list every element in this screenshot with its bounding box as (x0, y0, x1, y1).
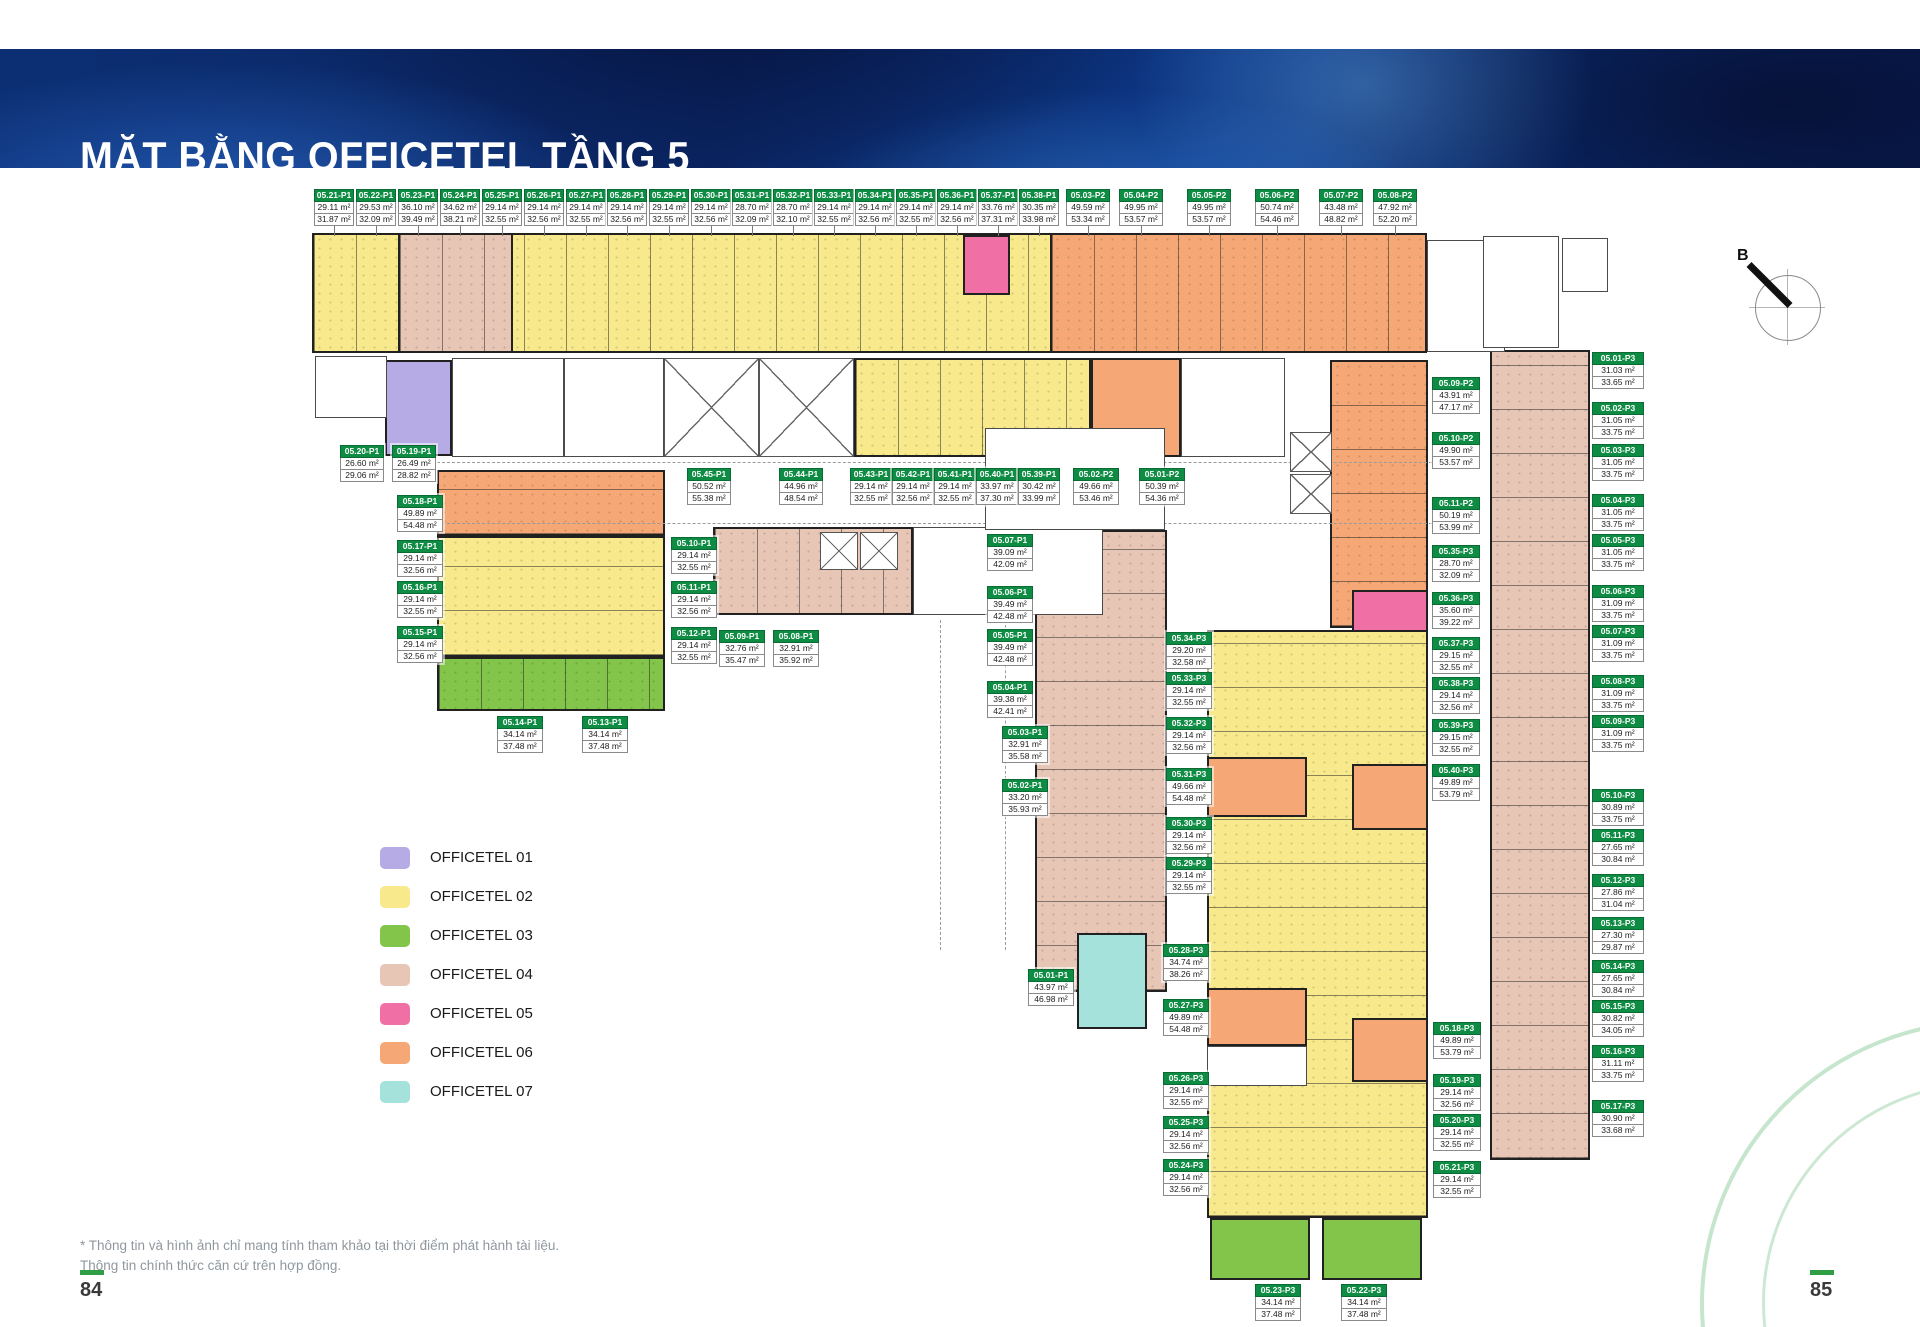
unit-code: 05.29-P3 (1166, 857, 1212, 870)
plan-core (1181, 358, 1285, 457)
unit-area-1: 49.66 m² (1166, 781, 1212, 793)
legend-swatch-icon (380, 847, 410, 869)
unit-area-2: 53.57 m² (1432, 457, 1480, 469)
unit-code: 05.11-P2 (1432, 497, 1480, 510)
legend-item: OFFICETEL 01 (380, 838, 533, 877)
unit-label: 05.08-P247.92 m²52.20 m² (1373, 189, 1417, 226)
unit-area-1: 29.14 m² (671, 550, 717, 562)
unit-area-2: 32.55 m² (566, 214, 606, 226)
unit-area-1: 33.97 m² (976, 481, 1018, 493)
unit-area-2: 31.87 m² (314, 214, 354, 226)
unit-area-1: 49.89 m² (397, 508, 443, 520)
unit-label: 05.20-P126.60 m²29.06 m² (340, 445, 384, 482)
unit-area-1: 27.30 m² (1592, 930, 1644, 942)
plan-elevator (820, 532, 858, 570)
unit-code: 05.34-P3 (1166, 632, 1212, 645)
legend-item: OFFICETEL 07 (380, 1072, 533, 1111)
unit-code: 05.29-P1 (649, 189, 689, 202)
unit-code: 05.05-P3 (1592, 534, 1644, 547)
unit-label: 05.40-P349.89 m²53.79 m² (1432, 764, 1480, 801)
unit-label: 05.17-P330.90 m²33.68 m² (1592, 1100, 1644, 1137)
unit-label: 05.04-P139.38 m²42.41 m² (987, 681, 1033, 718)
unit-code: 05.23-P1 (398, 189, 438, 202)
legend-label: OFFICETEL 04 (430, 966, 533, 983)
unit-label: 05.18-P349.89 m²53.79 m² (1433, 1022, 1481, 1059)
legend-item: OFFICETEL 04 (380, 955, 533, 994)
unit-area-2: 42.48 m² (987, 654, 1033, 666)
plan-elevator (860, 532, 898, 570)
unit-code: 05.34-P1 (855, 189, 895, 202)
unit-area-2: 32.56 m² (855, 214, 895, 226)
legend-item: OFFICETEL 06 (380, 1033, 533, 1072)
plan-wing (1210, 1218, 1310, 1280)
unit-area-1: 29.14 m² (397, 639, 443, 651)
unit-area-2: 32.55 m² (934, 493, 976, 505)
unit-area-2: 32.55 m² (397, 606, 443, 618)
plan-wing (1207, 630, 1428, 1218)
legend-label: OFFICETEL 02 (430, 888, 533, 905)
unit-label: 05.05-P249.95 m²53.57 m² (1187, 189, 1231, 226)
unit-area-1: 29.14 m² (1166, 685, 1212, 697)
unit-area-2: 32.55 m² (1432, 662, 1480, 674)
unit-area-1: 29.11 m² (314, 202, 354, 214)
unit-code: 05.03-P3 (1592, 444, 1644, 457)
plan-core (1483, 236, 1559, 348)
unit-code: 05.42-P1 (892, 468, 934, 481)
unit-area-1: 30.42 m² (1018, 481, 1060, 493)
unit-label: 05.45-P150.52 m²55.38 m² (687, 468, 731, 505)
unit-code: 05.04-P2 (1119, 189, 1163, 202)
plan-wing (1207, 757, 1307, 817)
unit-label: 05.14-P134.14 m²37.48 m² (497, 716, 543, 753)
unit-area-1: 31.05 m² (1592, 547, 1644, 559)
unit-label: 05.24-P329.14 m²32.56 m² (1163, 1159, 1209, 1196)
unit-code: 05.08-P1 (773, 630, 819, 643)
unit-area-2: 33.75 m² (1592, 740, 1644, 752)
unit-label: 05.44-P144.96 m²48.54 m² (779, 468, 823, 505)
unit-area-2: 32.55 m² (850, 493, 892, 505)
plan-core (564, 358, 664, 457)
unit-area-1: 28.70 m² (1432, 558, 1480, 570)
unit-area-1: 31.09 m² (1592, 728, 1644, 740)
unit-area-2: 37.31 m² (978, 214, 1018, 226)
unit-area-1: 29.14 m² (1433, 1087, 1481, 1099)
plan-wing (1077, 933, 1147, 1029)
unit-code: 05.27-P3 (1163, 999, 1209, 1012)
unit-label: 05.07-P243.48 m²48.82 m² (1319, 189, 1363, 226)
unit-label: 05.11-P250.19 m²53.99 m² (1432, 497, 1480, 534)
plan-wing (437, 657, 665, 711)
unit-area-1: 34.14 m² (497, 729, 543, 741)
unit-code: 05.12-P1 (671, 627, 717, 640)
unit-area-2: 33.65 m² (1592, 377, 1644, 389)
plan-elevator (1290, 474, 1332, 514)
unit-area-1: 31.05 m² (1592, 457, 1644, 469)
unit-code: 05.27-P1 (566, 189, 606, 202)
unit-code: 05.24-P1 (440, 189, 480, 202)
unit-code: 05.16-P3 (1592, 1045, 1644, 1058)
unit-area-1: 31.09 m² (1592, 638, 1644, 650)
page-number-dash (80, 1270, 104, 1275)
unit-code: 05.36-P3 (1432, 592, 1480, 605)
unit-area-2: 32.55 m² (671, 652, 717, 664)
unit-label: 05.13-P134.14 m²37.48 m² (582, 716, 628, 753)
unit-code: 05.07-P2 (1319, 189, 1363, 202)
unit-label: 05.38-P130.35 m²33.98 m² (1019, 189, 1059, 226)
unit-area-2: 32.56 m² (937, 214, 977, 226)
unit-area-1: 39.49 m² (987, 599, 1033, 611)
unit-label: 05.39-P329.15 m²32.55 m² (1432, 719, 1480, 756)
unit-code: 05.21-P3 (1433, 1161, 1481, 1174)
unit-area-1: 49.95 m² (1187, 202, 1231, 214)
unit-label: 05.16-P129.14 m²32.55 m² (397, 581, 443, 618)
unit-code: 05.10-P2 (1432, 432, 1480, 445)
unit-area-2: 54.48 m² (1166, 793, 1212, 805)
unit-area-1: 31.05 m² (1592, 507, 1644, 519)
unit-code: 05.04-P1 (987, 681, 1033, 694)
plan-wing (385, 360, 452, 456)
unit-code: 05.13-P1 (582, 716, 628, 729)
unit-code: 05.08-P3 (1592, 675, 1644, 688)
unit-area-2: 46.98 m² (1028, 994, 1074, 1006)
unit-code: 05.31-P3 (1166, 768, 1212, 781)
unit-label: 05.25-P329.14 m²32.56 m² (1163, 1116, 1209, 1153)
unit-code: 05.38-P1 (1019, 189, 1059, 202)
plan-core (1562, 238, 1608, 292)
unit-area-1: 29.14 m² (892, 481, 934, 493)
unit-area-1: 28.70 m² (732, 202, 772, 214)
unit-code: 05.40-P3 (1432, 764, 1480, 777)
unit-area-1: 29.14 m² (1166, 730, 1212, 742)
unit-area-1: 30.35 m² (1019, 202, 1059, 214)
unit-area-2: 32.58 m² (1166, 657, 1212, 669)
unit-label: 05.34-P329.20 m²32.58 m² (1166, 632, 1212, 669)
unit-code: 05.28-P3 (1163, 944, 1209, 957)
unit-area-2: 48.82 m² (1319, 214, 1363, 226)
unit-area-1: 49.66 m² (1073, 481, 1119, 493)
unit-code: 05.18-P3 (1433, 1022, 1481, 1035)
unit-area-2: 31.04 m² (1592, 899, 1644, 911)
unit-label: 05.30-P129.14 m²32.56 m² (691, 189, 731, 226)
unit-area-1: 49.90 m² (1432, 445, 1480, 457)
unit-label: 05.01-P143.97 m²46.98 m² (1028, 969, 1074, 1006)
unit-label: 05.28-P334.74 m²38.26 m² (1163, 944, 1209, 981)
unit-area-2: 32.55 m² (1166, 697, 1212, 709)
unit-area-2: 34.05 m² (1592, 1025, 1644, 1037)
unit-label: 05.15-P330.82 m²34.05 m² (1592, 1000, 1644, 1037)
unit-area-1: 29.14 m² (649, 202, 689, 214)
unit-code: 05.26-P3 (1163, 1072, 1209, 1085)
unit-area-2: 33.75 m² (1592, 519, 1644, 531)
unit-label: 05.41-P129.14 m²32.55 m² (934, 468, 976, 505)
unit-code: 05.22-P3 (1341, 1284, 1387, 1297)
unit-area-2: 38.26 m² (1163, 969, 1209, 981)
unit-area-1: 36.10 m² (398, 202, 438, 214)
unit-label: 05.38-P329.14 m²32.56 m² (1432, 677, 1480, 714)
unit-area-2: 32.09 m² (732, 214, 772, 226)
unit-area-2: 42.48 m² (987, 611, 1033, 623)
unit-label: 05.22-P334.14 m²37.48 m² (1341, 1284, 1387, 1321)
unit-code: 05.32-P1 (773, 189, 813, 202)
unit-code: 05.17-P1 (397, 540, 443, 553)
unit-label: 05.06-P250.74 m²54.46 m² (1255, 189, 1299, 226)
legend-swatch-icon (380, 964, 410, 986)
unit-code: 05.39-P1 (1018, 468, 1060, 481)
unit-area-2: 32.56 m² (397, 565, 443, 577)
unit-code: 05.33-P3 (1166, 672, 1212, 685)
unit-code: 05.37-P3 (1432, 637, 1480, 650)
unit-area-1: 29.14 m² (814, 202, 854, 214)
unit-label: 05.08-P132.91 m²35.92 m² (773, 630, 819, 667)
unit-label: 05.37-P133.76 m²37.31 m² (978, 189, 1018, 226)
plan-wing (1352, 764, 1428, 830)
unit-code: 05.17-P3 (1592, 1100, 1644, 1113)
unit-label: 05.12-P327.86 m²31.04 m² (1592, 874, 1644, 911)
unit-label: 05.20-P329.14 m²32.55 m² (1433, 1114, 1481, 1151)
page-number-dash (1810, 1270, 1834, 1275)
unit-code: 05.03-P1 (1002, 726, 1048, 739)
unit-area-2: 53.34 m² (1066, 214, 1110, 226)
unit-area-2: 32.56 m² (892, 493, 934, 505)
unit-label: 05.35-P328.70 m²32.09 m² (1432, 545, 1480, 582)
unit-area-2: 30.84 m² (1592, 854, 1644, 866)
unit-area-1: 49.95 m² (1119, 202, 1163, 214)
unit-area-1: 29.53 m² (356, 202, 396, 214)
plan-elevator (1290, 432, 1332, 472)
unit-code: 05.21-P1 (314, 189, 354, 202)
plan-wing (1490, 350, 1590, 1160)
unit-area-1: 34.74 m² (1163, 957, 1209, 969)
unit-label: 05.36-P129.14 m²32.56 m² (937, 189, 977, 226)
unit-label: 05.15-P129.14 m²32.56 m² (397, 626, 443, 663)
unit-area-1: 29.15 m² (1432, 732, 1480, 744)
unit-area-1: 27.86 m² (1592, 887, 1644, 899)
legend-label: OFFICETEL 01 (430, 849, 533, 866)
legend-label: OFFICETEL 03 (430, 927, 533, 944)
unit-area-2: 32.56 m² (1163, 1184, 1209, 1196)
plan-wing (1352, 590, 1428, 632)
unit-area-1: 29.14 m² (1433, 1127, 1481, 1139)
unit-label: 05.01-P331.03 m²33.65 m² (1592, 352, 1644, 389)
unit-code: 05.44-P1 (779, 468, 823, 481)
unit-label: 05.28-P129.14 m²32.56 m² (607, 189, 647, 226)
unit-area-1: 50.52 m² (687, 481, 731, 493)
plan-corridor (940, 620, 1006, 950)
unit-code: 05.32-P3 (1166, 717, 1212, 730)
unit-area-1: 29.14 m² (1166, 830, 1212, 842)
legend-swatch-icon (380, 1081, 410, 1103)
unit-area-1: 29.14 m² (566, 202, 606, 214)
plan-elevator (759, 358, 854, 457)
unit-area-2: 42.41 m² (987, 706, 1033, 718)
unit-code: 05.05-P2 (1187, 189, 1231, 202)
unit-label: 05.02-P133.20 m²35.93 m² (1002, 779, 1048, 816)
unit-label: 05.11-P327.65 m²30.84 m² (1592, 829, 1644, 866)
unit-label: 05.33-P129.14 m²32.55 m² (814, 189, 854, 226)
unit-code: 05.39-P3 (1432, 719, 1480, 732)
unit-area-1: 31.11 m² (1592, 1058, 1644, 1070)
unit-label: 05.21-P129.11 m²31.87 m² (314, 189, 354, 226)
compass: B (1737, 247, 1837, 352)
unit-area-2: 48.54 m² (779, 493, 823, 505)
plan-wing (1352, 1018, 1428, 1082)
unit-label: 05.27-P349.89 m²54.48 m² (1163, 999, 1209, 1036)
unit-area-2: 53.79 m² (1433, 1047, 1481, 1059)
unit-code: 05.06-P3 (1592, 585, 1644, 598)
unit-area-1: 34.14 m² (582, 729, 628, 741)
unit-label: 05.11-P129.14 m²32.56 m² (671, 581, 717, 618)
unit-label: 05.10-P129.14 m²32.55 m² (671, 537, 717, 574)
unit-label: 05.10-P249.90 m²53.57 m² (1432, 432, 1480, 469)
unit-code: 05.38-P3 (1432, 677, 1480, 690)
unit-code: 05.10-P3 (1592, 789, 1644, 802)
unit-area-2: 32.56 m² (397, 651, 443, 663)
unit-code: 05.35-P1 (896, 189, 936, 202)
unit-label: 05.06-P139.49 m²42.48 m² (987, 586, 1033, 623)
unit-area-2: 32.55 m² (482, 214, 522, 226)
unit-area-2: 33.75 m² (1592, 1070, 1644, 1082)
unit-code: 05.20-P1 (340, 445, 384, 458)
unit-label: 05.07-P331.09 m²33.75 m² (1592, 625, 1644, 662)
page-title: MẶT BẰNG OFFICETEL TẦNG 5 (80, 133, 690, 181)
unit-label: 05.21-P329.14 m²32.55 m² (1433, 1161, 1481, 1198)
unit-area-2: 33.75 m² (1592, 469, 1644, 481)
unit-label: 05.34-P129.14 m²32.56 m² (855, 189, 895, 226)
unit-area-1: 31.09 m² (1592, 598, 1644, 610)
unit-label: 05.03-P132.91 m²35.58 m² (1002, 726, 1048, 763)
footnote-line-2: Thông tin chính thức căn cứ trên hợp đồn… (80, 1256, 559, 1276)
unit-code: 05.01-P1 (1028, 969, 1074, 982)
legend-item: OFFICETEL 03 (380, 916, 533, 955)
unit-area-1: 26.49 m² (392, 458, 436, 470)
unit-code: 05.04-P3 (1592, 494, 1644, 507)
unit-code: 05.18-P1 (397, 495, 443, 508)
unit-label: 05.23-P334.14 m²37.48 m² (1255, 1284, 1301, 1321)
unit-area-2: 32.56 m² (1166, 742, 1212, 754)
unit-area-1: 39.38 m² (987, 694, 1033, 706)
unit-code: 05.14-P3 (1592, 960, 1644, 973)
unit-label: 05.32-P128.70 m²32.10 m² (773, 189, 813, 226)
unit-label: 05.12-P129.14 m²32.55 m² (671, 627, 717, 664)
unit-area-1: 31.03 m² (1592, 365, 1644, 377)
legend: OFFICETEL 01OFFICETEL 02OFFICETEL 03OFFI… (380, 838, 533, 1111)
unit-area-2: 37.48 m² (1341, 1309, 1387, 1321)
unit-code: 05.36-P1 (937, 189, 977, 202)
unit-code: 05.19-P1 (392, 445, 436, 458)
unit-label: 05.09-P243.91 m²47.17 m² (1432, 377, 1480, 414)
unit-area-2: 38.21 m² (440, 214, 480, 226)
unit-area-1: 29.14 m² (1163, 1172, 1209, 1184)
plan-wing (437, 536, 665, 657)
unit-code: 05.20-P3 (1433, 1114, 1481, 1127)
unit-area-2: 33.68 m² (1592, 1125, 1644, 1137)
unit-area-1: 29.15 m² (1432, 650, 1480, 662)
unit-area-1: 44.96 m² (779, 481, 823, 493)
unit-code: 05.01-P3 (1592, 352, 1644, 365)
legend-item: OFFICETEL 05 (380, 994, 533, 1033)
unit-area-2: 33.99 m² (1018, 493, 1060, 505)
unit-area-2: 53.46 m² (1073, 493, 1119, 505)
unit-code: 05.02-P2 (1073, 468, 1119, 481)
unit-area-2: 32.56 m² (671, 606, 717, 618)
unit-label: 05.24-P134.62 m²38.21 m² (440, 189, 480, 226)
unit-area-2: 33.75 m² (1592, 650, 1644, 662)
unit-area-2: 53.99 m² (1432, 522, 1480, 534)
unit-area-2: 55.38 m² (687, 493, 731, 505)
unit-label: 05.31-P128.70 m²32.09 m² (732, 189, 772, 226)
unit-label: 05.19-P126.49 m²28.82 m² (392, 445, 436, 482)
unit-area-2: 32.56 m² (1163, 1141, 1209, 1153)
unit-code: 05.09-P2 (1432, 377, 1480, 390)
legend-label: OFFICETEL 07 (430, 1083, 533, 1100)
unit-label: 05.30-P329.14 m²32.56 m² (1166, 817, 1212, 854)
unit-code: 05.33-P1 (814, 189, 854, 202)
unit-label: 05.02-P249.66 m²53.46 m² (1073, 468, 1119, 505)
unit-code: 05.11-P1 (671, 581, 717, 594)
unit-area-2: 32.55 m² (649, 214, 689, 226)
unit-area-1: 33.76 m² (978, 202, 1018, 214)
unit-code: 05.13-P3 (1592, 917, 1644, 930)
unit-label: 05.07-P139.09 m²42.09 m² (987, 534, 1033, 571)
unit-code: 05.25-P3 (1163, 1116, 1209, 1129)
unit-area-2: 33.75 m² (1592, 427, 1644, 439)
unit-area-2: 54.46 m² (1255, 214, 1299, 226)
unit-area-1: 29.14 m² (934, 481, 976, 493)
unit-area-2: 32.55 m² (1432, 744, 1480, 756)
unit-label: 05.05-P139.49 m²42.48 m² (987, 629, 1033, 666)
unit-code: 05.30-P1 (691, 189, 731, 202)
unit-code: 05.05-P1 (987, 629, 1033, 642)
unit-area-1: 49.89 m² (1163, 1012, 1209, 1024)
unit-area-2: 37.48 m² (582, 741, 628, 753)
unit-label: 05.22-P129.53 m²32.09 m² (356, 189, 396, 226)
unit-area-1: 29.14 m² (1166, 870, 1212, 882)
unit-label: 05.40-P133.97 m²37.30 m² (976, 468, 1018, 505)
unit-area-1: 34.62 m² (440, 202, 480, 214)
unit-area-2: 42.09 m² (987, 559, 1033, 571)
unit-label: 05.43-P129.14 m²32.55 m² (850, 468, 892, 505)
unit-area-1: 29.14 m² (524, 202, 564, 214)
unit-code: 05.31-P1 (732, 189, 772, 202)
unit-code: 05.03-P2 (1066, 189, 1110, 202)
unit-label: 05.10-P330.89 m²33.75 m² (1592, 789, 1644, 826)
unit-area-1: 31.09 m² (1592, 688, 1644, 700)
unit-label: 05.42-P129.14 m²32.56 m² (892, 468, 934, 505)
unit-label: 05.35-P129.14 m²32.55 m² (896, 189, 936, 226)
unit-area-2: 32.55 m² (896, 214, 936, 226)
unit-label: 05.14-P327.65 m²30.84 m² (1592, 960, 1644, 997)
unit-area-2: 32.55 m² (671, 562, 717, 574)
unit-code: 05.23-P3 (1255, 1284, 1301, 1297)
unit-label: 05.13-P327.30 m²29.87 m² (1592, 917, 1644, 954)
unit-area-1: 32.76 m² (719, 643, 765, 655)
unit-label: 05.02-P331.05 m²33.75 m² (1592, 402, 1644, 439)
unit-area-2: 35.92 m² (773, 655, 819, 667)
unit-area-1: 29.14 m² (1163, 1129, 1209, 1141)
unit-area-2: 32.56 m² (607, 214, 647, 226)
unit-area-1: 43.48 m² (1319, 202, 1363, 214)
unit-label: 05.32-P329.14 m²32.56 m² (1166, 717, 1212, 754)
unit-code: 05.45-P1 (687, 468, 731, 481)
unit-area-2: 32.55 m² (814, 214, 854, 226)
unit-label: 05.04-P331.05 m²33.75 m² (1592, 494, 1644, 531)
footnote-line-1: * Thông tin và hình ảnh chỉ mang tính th… (80, 1236, 559, 1256)
unit-area-1: 29.14 m² (1163, 1085, 1209, 1097)
unit-area-2: 33.75 m² (1592, 610, 1644, 622)
unit-label: 05.18-P149.89 m²54.48 m² (397, 495, 443, 532)
unit-area-2: 32.55 m² (1163, 1097, 1209, 1109)
unit-area-2: 33.75 m² (1592, 700, 1644, 712)
